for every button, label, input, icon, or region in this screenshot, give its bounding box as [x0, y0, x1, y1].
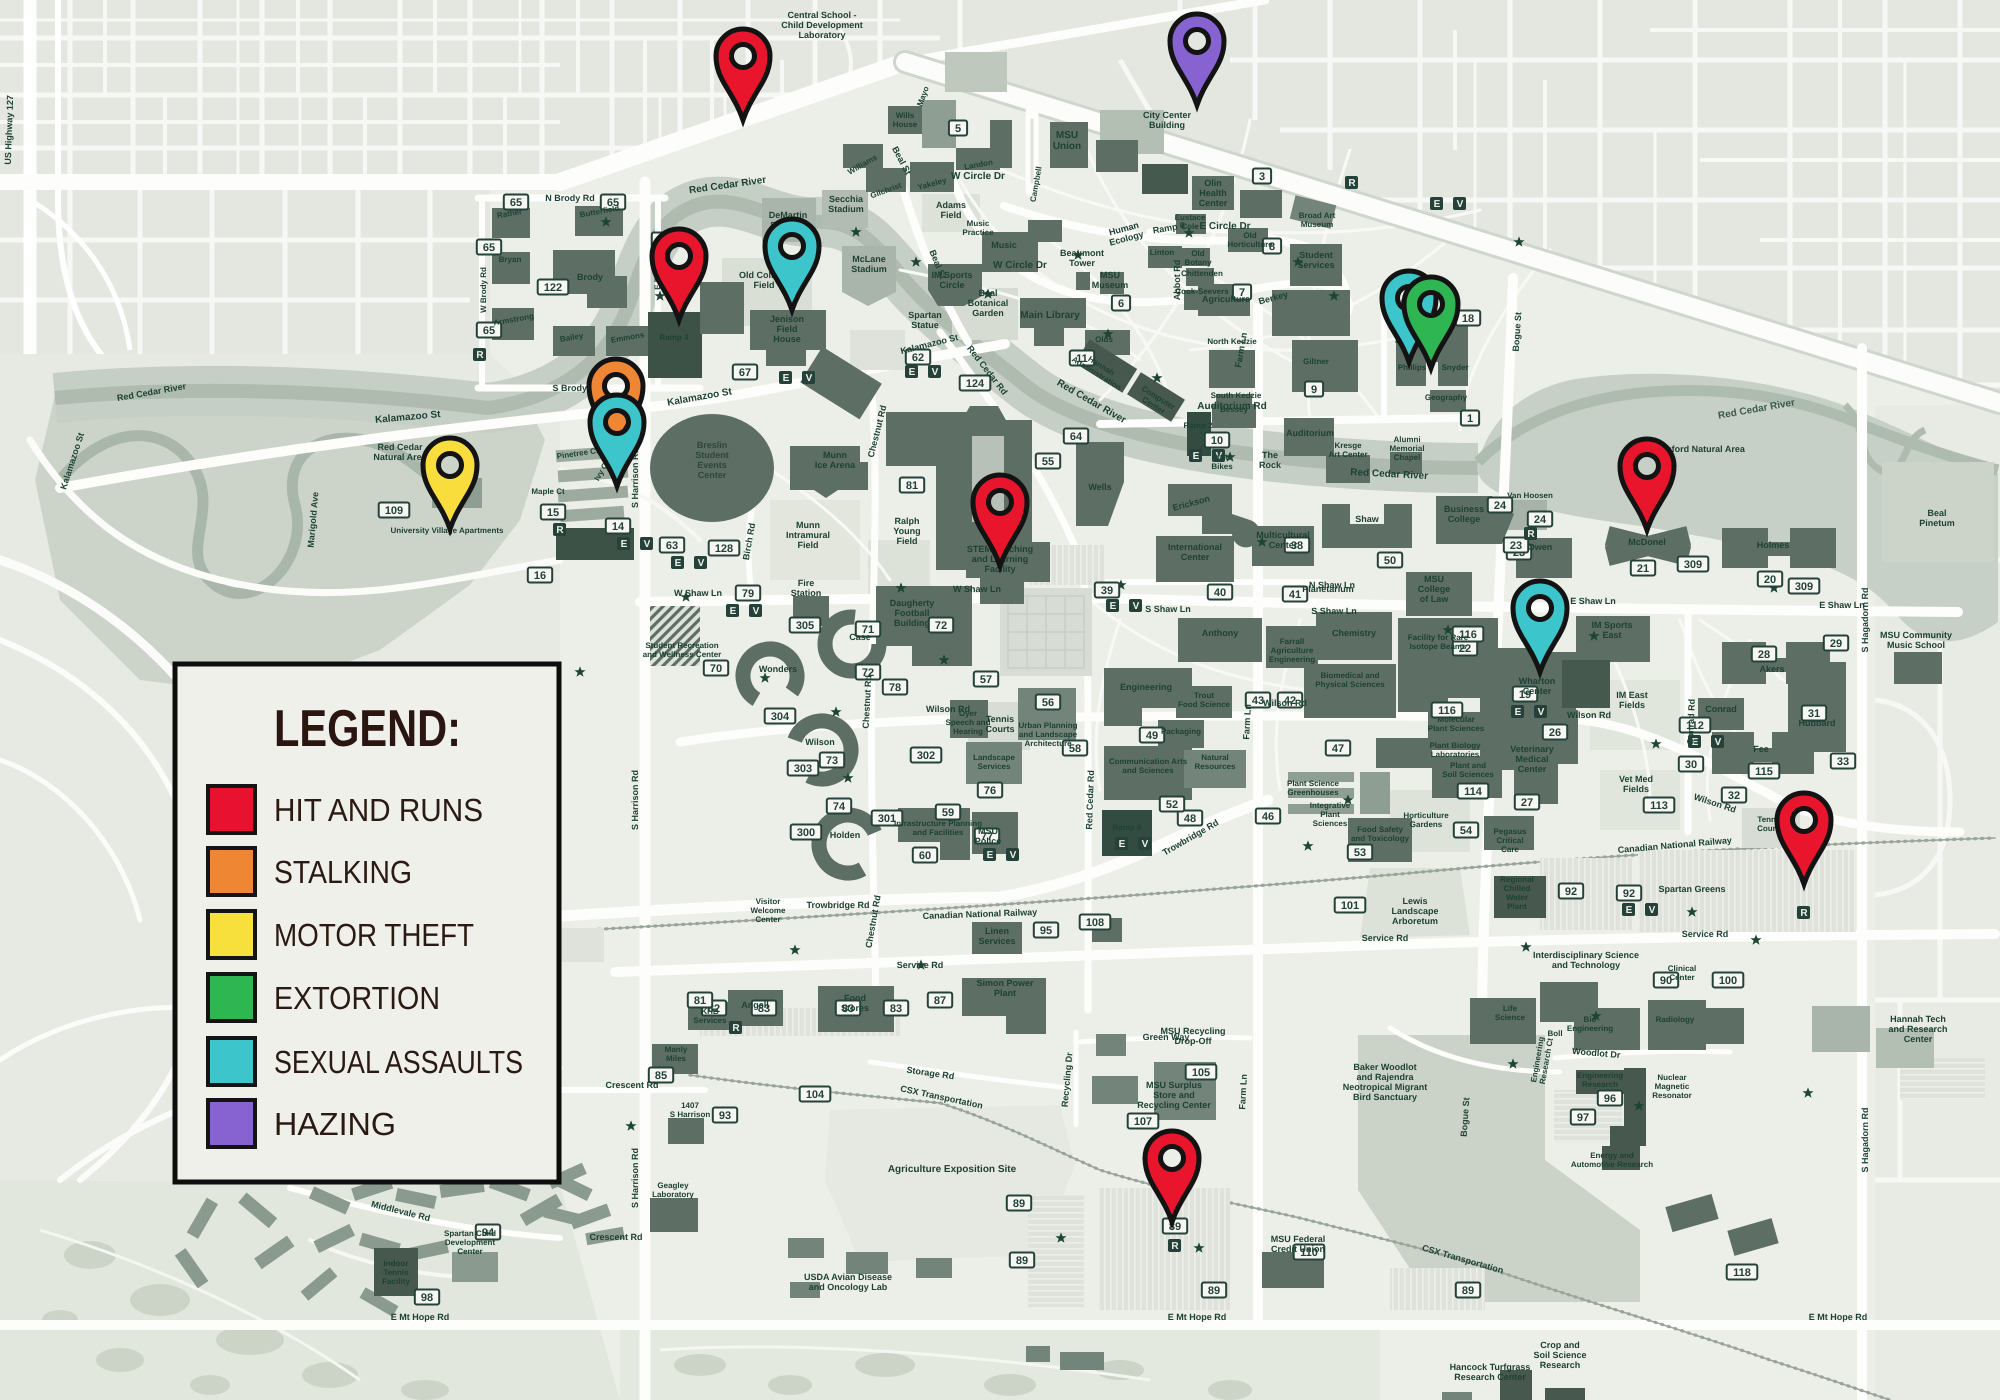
- svg-text:LEGEND:: LEGEND:: [274, 700, 461, 758]
- svg-text:E Shaw Ln: E Shaw Ln: [1819, 600, 1865, 610]
- svg-text:92: 92: [1623, 888, 1635, 900]
- svg-text:V: V: [932, 367, 939, 378]
- svg-text:E Shaw Ln: E Shaw Ln: [1570, 596, 1616, 606]
- svg-text:Ramp 2: Ramp 2: [1184, 421, 1213, 430]
- svg-text:89: 89: [1208, 1285, 1220, 1297]
- svg-text:Van Hoosen: Van Hoosen: [1507, 491, 1553, 500]
- svg-text:AdamsField: AdamsField: [936, 200, 966, 220]
- svg-text:28: 28: [1758, 649, 1770, 661]
- svg-text:Radiology: Radiology: [1656, 1015, 1695, 1024]
- svg-text:E: E: [987, 850, 994, 861]
- svg-text:McLaneStadium: McLaneStadium: [851, 254, 887, 274]
- svg-text:V: V: [753, 606, 760, 617]
- svg-text:30: 30: [1685, 759, 1697, 771]
- svg-text:32: 32: [1728, 790, 1740, 802]
- svg-text:McDonel: McDonel: [1628, 537, 1666, 547]
- svg-text:Crescent Rd: Crescent Rd: [605, 1080, 658, 1090]
- svg-text:Olds: Olds: [1095, 335, 1113, 344]
- svg-text:Holmes: Holmes: [1757, 540, 1790, 550]
- svg-text:97: 97: [1577, 1112, 1589, 1124]
- svg-text:Spartan Greens: Spartan Greens: [1658, 884, 1725, 894]
- svg-text:26: 26: [1549, 727, 1561, 739]
- svg-text:MSUUnion: MSUUnion: [1053, 130, 1081, 152]
- svg-text:Broad ArtMuseum: Broad ArtMuseum: [1299, 211, 1336, 229]
- svg-text:E: E: [783, 373, 790, 384]
- svg-text:56: 56: [1042, 697, 1054, 709]
- svg-text:9: 9: [1311, 384, 1317, 396]
- svg-text:R: R: [556, 525, 564, 536]
- svg-text:City CenterBuilding: City CenterBuilding: [1143, 110, 1192, 130]
- svg-text:87: 87: [934, 995, 946, 1007]
- svg-text:E Mt Hope Rd: E Mt Hope Rd: [391, 1312, 450, 1322]
- svg-text:MSU CommunityMusic School: MSU CommunityMusic School: [1880, 630, 1952, 650]
- svg-text:83: 83: [890, 1003, 902, 1015]
- svg-text:47: 47: [1332, 743, 1344, 755]
- svg-text:Fee: Fee: [1753, 744, 1769, 754]
- svg-text:Holden: Holden: [830, 830, 861, 840]
- svg-text:20: 20: [1764, 574, 1776, 586]
- svg-text:HIT AND RUNS: HIT AND RUNS: [274, 792, 483, 828]
- svg-text:Ramp 6: Ramp 6: [1113, 823, 1142, 832]
- svg-text:118: 118: [1733, 1267, 1751, 1279]
- svg-text:98: 98: [421, 1292, 433, 1304]
- svg-text:Farm Ln: Farm Ln: [1237, 1074, 1249, 1110]
- svg-text:64: 64: [1070, 431, 1083, 443]
- svg-text:E: E: [675, 558, 682, 569]
- svg-text:3: 3: [1259, 171, 1265, 183]
- svg-text:40: 40: [1214, 587, 1226, 599]
- svg-text:V: V: [1010, 850, 1017, 861]
- svg-text:S Harrison Rd: S Harrison Rd: [630, 1148, 640, 1208]
- svg-text:V: V: [806, 373, 813, 384]
- svg-text:SpartanStatue: SpartanStatue: [908, 310, 942, 330]
- svg-text:SecchiaStadium: SecchiaStadium: [828, 194, 864, 214]
- svg-text:48: 48: [1184, 813, 1196, 825]
- svg-text:GeagleyLaboratory: GeagleyLaboratory: [652, 1181, 694, 1199]
- svg-text:Biomedical andPhysical Science: Biomedical andPhysical Sciences: [1315, 671, 1385, 689]
- svg-text:Wilson Rd: Wilson Rd: [1263, 698, 1307, 708]
- svg-text:Red CedarNatural Area: Red CedarNatural Area: [373, 442, 427, 462]
- svg-text:81: 81: [906, 480, 918, 492]
- svg-text:W Brody Rd: W Brody Rd: [479, 267, 488, 313]
- svg-text:33: 33: [1837, 756, 1849, 768]
- svg-text:21: 21: [1637, 563, 1649, 575]
- svg-text:304: 304: [771, 711, 790, 723]
- svg-text:54: 54: [1460, 825, 1473, 837]
- svg-text:46: 46: [1262, 811, 1274, 823]
- svg-text:89: 89: [1013, 1198, 1025, 1210]
- svg-text:Red Cedar Rd: Red Cedar Rd: [1084, 770, 1096, 830]
- svg-text:309: 309: [1684, 559, 1702, 571]
- svg-text:S Hagadorn Rd: S Hagadorn Rd: [1860, 1107, 1870, 1172]
- svg-text:303: 303: [794, 763, 812, 775]
- svg-text:V: V: [1142, 839, 1149, 850]
- svg-text:Phillips: Phillips: [1398, 363, 1427, 372]
- svg-text:39: 39: [1101, 585, 1113, 597]
- svg-text:89: 89: [1016, 1255, 1028, 1267]
- svg-text:BusinessCollege: BusinessCollege: [1444, 504, 1484, 524]
- svg-text:55: 55: [1042, 456, 1054, 468]
- svg-text:E: E: [1515, 707, 1522, 718]
- svg-text:Wilson Rd: Wilson Rd: [1567, 710, 1611, 720]
- svg-text:Giltner: Giltner: [1303, 357, 1329, 366]
- svg-text:62: 62: [912, 352, 924, 364]
- svg-text:ClinicalCenter: ClinicalCenter: [1668, 964, 1696, 982]
- svg-text:107: 107: [1134, 1116, 1152, 1128]
- svg-text:Farm Ln: Farm Ln: [1241, 704, 1253, 740]
- svg-text:6: 6: [1118, 298, 1124, 310]
- svg-text:E: E: [1119, 839, 1126, 850]
- svg-text:V: V: [1538, 707, 1545, 718]
- svg-text:52: 52: [1166, 799, 1178, 811]
- svg-text:72: 72: [935, 620, 947, 632]
- svg-text:89: 89: [1462, 1285, 1474, 1297]
- svg-text:E: E: [909, 367, 916, 378]
- svg-text:60: 60: [919, 850, 931, 862]
- svg-text:49: 49: [1146, 730, 1158, 742]
- svg-text:Urban Planningand LandscapeArc: Urban Planningand LandscapeArchitecture: [1018, 721, 1077, 748]
- svg-text:105: 105: [1192, 1067, 1210, 1079]
- svg-text:StudentServices: StudentServices: [1297, 250, 1334, 270]
- svg-text:57: 57: [980, 674, 992, 686]
- svg-text:W Circle Dr: W Circle Dr: [951, 171, 1005, 182]
- svg-text:Planetarium: Planetarium: [1302, 584, 1354, 594]
- svg-text:E: E: [1193, 451, 1200, 462]
- svg-text:V: V: [1715, 737, 1722, 748]
- svg-text:41: 41: [1289, 589, 1301, 601]
- svg-text:R: R: [1527, 529, 1535, 540]
- svg-text:Chittenden: Chittenden: [1181, 269, 1223, 278]
- svg-text:93: 93: [719, 1110, 731, 1122]
- svg-text:Vet MedFields: Vet MedFields: [1619, 774, 1653, 794]
- svg-text:E Mt Hope Rd: E Mt Hope Rd: [1809, 1312, 1868, 1322]
- svg-text:Conrad: Conrad: [1705, 704, 1737, 714]
- svg-text:Owen: Owen: [1528, 542, 1553, 552]
- svg-text:W Shaw Ln: W Shaw Ln: [953, 584, 1001, 594]
- svg-text:E: E: [1626, 905, 1633, 916]
- svg-text:Music: Music: [991, 240, 1017, 250]
- svg-text:IndoorTennisFacility: IndoorTennisFacility: [382, 1259, 410, 1286]
- svg-text:Plant ScienceGreenhouses: Plant ScienceGreenhouses: [1287, 779, 1340, 797]
- svg-text:South Kedzie: South Kedzie: [1211, 391, 1262, 400]
- svg-text:MSUPolice: MSUPolice: [975, 826, 1002, 846]
- svg-text:Trowbridge Rd: Trowbridge Rd: [807, 900, 870, 910]
- svg-text:MOTOR THEFT: MOTOR THEFT: [274, 917, 474, 953]
- svg-text:Boll: Boll: [1547, 1029, 1562, 1038]
- svg-text:309: 309: [1795, 581, 1813, 593]
- svg-text:Baker Woodlotand RajendraNeotr: Baker Woodlotand RajendraNeotropical Mig…: [1343, 1062, 1428, 1102]
- svg-text:Food Safetyand Toxicology: Food Safetyand Toxicology: [1351, 825, 1410, 843]
- svg-text:100: 100: [1719, 975, 1737, 987]
- svg-text:73: 73: [826, 755, 838, 767]
- svg-text:Akers: Akers: [1759, 664, 1784, 674]
- svg-text:MSU FederalCredit Union: MSU FederalCredit Union: [1271, 1234, 1326, 1254]
- svg-text:Plant BiologyLaboratories: Plant BiologyLaboratories: [1429, 741, 1481, 759]
- svg-text:74: 74: [833, 801, 846, 813]
- svg-text:E Mt Hope Rd: E Mt Hope Rd: [1168, 1312, 1227, 1322]
- svg-text:70: 70: [710, 663, 722, 675]
- svg-text:10: 10: [1211, 435, 1223, 447]
- svg-text:96: 96: [1604, 1093, 1616, 1105]
- svg-text:DaughertyFootballBuilding: DaughertyFootballBuilding: [890, 598, 935, 628]
- svg-text:Agriculture Exposition Site: Agriculture Exposition Site: [888, 1164, 1017, 1175]
- svg-text:Agriculture: Agriculture: [1202, 294, 1250, 304]
- svg-text:NuclearMagneticResonator: NuclearMagneticResonator: [1652, 1073, 1692, 1100]
- svg-text:122: 122: [544, 282, 562, 294]
- svg-text:E: E: [621, 539, 628, 550]
- svg-text:Case: Case: [849, 632, 871, 642]
- svg-text:1: 1: [1467, 413, 1473, 425]
- svg-text:67: 67: [739, 367, 751, 379]
- svg-text:14: 14: [612, 521, 625, 533]
- svg-text:V: V: [698, 558, 705, 569]
- svg-text:Snyder: Snyder: [1441, 363, 1468, 372]
- svg-text:Hancock TurfgrassResearch Cent: Hancock TurfgrassResearch Center: [1450, 1362, 1531, 1382]
- svg-text:WillsHouse: WillsHouse: [893, 111, 918, 129]
- svg-text:76: 76: [984, 785, 996, 797]
- svg-text:302: 302: [917, 750, 935, 762]
- svg-text:E: E: [1434, 199, 1441, 210]
- svg-text:Angell: Angell: [741, 1000, 769, 1010]
- svg-text:Brody: Brody: [577, 272, 603, 282]
- svg-text:78: 78: [889, 682, 901, 694]
- svg-text:300: 300: [797, 827, 815, 839]
- svg-text:Engineering: Engineering: [1120, 682, 1172, 692]
- svg-text:R: R: [1800, 908, 1808, 919]
- svg-text:Student Recreationand Wellness: Student Recreationand Wellness Center: [643, 641, 722, 659]
- svg-text:Shaw: Shaw: [1355, 514, 1380, 524]
- svg-text:109: 109: [385, 505, 403, 517]
- svg-text:Crescent Rd: Crescent Rd: [589, 1232, 642, 1242]
- svg-text:Maple Ct: Maple Ct: [531, 487, 565, 496]
- svg-text:53: 53: [1354, 847, 1366, 859]
- svg-text:27: 27: [1521, 797, 1533, 809]
- svg-text:N Brody Rd: N Brody Rd: [545, 193, 595, 203]
- svg-text:Main Library: Main Library: [1020, 310, 1080, 321]
- svg-text:Auditorium: Auditorium: [1286, 428, 1334, 438]
- svg-text:92: 92: [1565, 886, 1577, 898]
- svg-text:Wells: Wells: [1088, 482, 1111, 492]
- svg-text:LandscapeServices: LandscapeServices: [973, 753, 1015, 771]
- svg-text:Conrad Rd: Conrad Rd: [1685, 699, 1697, 745]
- svg-text:IM EastFields: IM EastFields: [1616, 690, 1648, 710]
- svg-text:124: 124: [966, 378, 985, 390]
- svg-text:95: 95: [1040, 925, 1052, 937]
- svg-text:Wilson: Wilson: [805, 737, 834, 747]
- svg-text:North Kedzie: North Kedzie: [1207, 337, 1257, 346]
- svg-text:Geography: Geography: [1425, 393, 1468, 402]
- svg-text:S Harrison Rd: S Harrison Rd: [630, 770, 640, 830]
- svg-text:Packaging: Packaging: [1161, 727, 1201, 736]
- svg-text:Wonders: Wonders: [759, 664, 797, 674]
- svg-text:128: 128: [715, 543, 733, 555]
- svg-text:101: 101: [1341, 900, 1359, 912]
- svg-text:108: 108: [1086, 917, 1104, 929]
- svg-text:WhartonCenter: WhartonCenter: [1519, 676, 1556, 696]
- svg-text:18: 18: [1462, 313, 1474, 325]
- svg-text:114: 114: [1464, 786, 1483, 798]
- svg-text:16: 16: [534, 570, 546, 582]
- svg-text:Ramp 4: Ramp 4: [660, 333, 689, 342]
- svg-text:Service Rd: Service Rd: [897, 960, 944, 970]
- svg-text:Crop andSoil ScienceResearch: Crop andSoil ScienceResearch: [1533, 1340, 1586, 1370]
- svg-text:305: 305: [796, 620, 814, 632]
- svg-text:W Circle Dr: W Circle Dr: [993, 260, 1047, 271]
- svg-text:Chemistry: Chemistry: [1332, 628, 1376, 638]
- svg-text:23: 23: [1510, 540, 1522, 552]
- svg-text:V: V: [1457, 199, 1464, 210]
- svg-text:S Shaw Ln: S Shaw Ln: [1145, 604, 1191, 614]
- svg-text:R: R: [732, 1023, 740, 1034]
- svg-text:65: 65: [483, 242, 495, 254]
- svg-text:Anthony: Anthony: [1202, 628, 1239, 638]
- svg-text:EngineeringResearch: EngineeringResearch: [1577, 1071, 1623, 1089]
- svg-text:E: E: [730, 606, 737, 617]
- svg-text:115: 115: [1755, 766, 1773, 778]
- svg-text:BreslinStudentEventsCenter: BreslinStudentEventsCenter: [695, 440, 729, 480]
- svg-text:Linton: Linton: [1150, 248, 1175, 257]
- svg-text:R: R: [1171, 1241, 1179, 1252]
- svg-text:63: 63: [666, 540, 678, 552]
- svg-text:24: 24: [1534, 514, 1547, 526]
- svg-text:24: 24: [1494, 500, 1507, 512]
- svg-text:AlumniMemorialChapel: AlumniMemorialChapel: [1389, 435, 1424, 462]
- svg-text:R: R: [1348, 178, 1356, 189]
- svg-text:Bessey: Bessey: [1220, 405, 1249, 414]
- svg-text:Service Rd: Service Rd: [1362, 933, 1409, 943]
- svg-text:113: 113: [1650, 800, 1668, 812]
- svg-text:RalphYoungField: RalphYoungField: [893, 516, 920, 546]
- svg-text:STALKING: STALKING: [274, 854, 412, 890]
- svg-text:V: V: [1133, 601, 1140, 612]
- svg-text:S Shaw Ln: S Shaw Ln: [1311, 606, 1357, 616]
- svg-text:ManlyMiles: ManlyMiles: [665, 1045, 688, 1063]
- svg-text:Bryan: Bryan: [499, 255, 522, 264]
- svg-text:Service Rd: Service Rd: [1682, 929, 1729, 939]
- svg-text:E: E: [1110, 601, 1117, 612]
- svg-text:S Hagadorn Rd: S Hagadorn Rd: [1860, 587, 1870, 652]
- svg-text:Hubbard: Hubbard: [1799, 718, 1836, 728]
- svg-text:MSUBikes: MSUBikes: [1211, 453, 1233, 471]
- svg-text:SEXUAL ASSAULTS: SEXUAL ASSAULTS: [274, 1044, 523, 1080]
- svg-text:V: V: [644, 539, 651, 550]
- svg-text:81: 81: [694, 995, 706, 1007]
- svg-text:V: V: [1649, 905, 1656, 916]
- svg-text:EXTORTION: EXTORTION: [274, 980, 440, 1016]
- svg-text:R: R: [476, 350, 484, 361]
- svg-text:59: 59: [942, 807, 954, 819]
- svg-text:Facility for RareIsotope Beams: Facility for RareIsotope Beams: [1408, 633, 1469, 651]
- svg-text:79: 79: [742, 588, 754, 600]
- svg-text:50: 50: [1384, 555, 1396, 567]
- svg-text:29: 29: [1830, 638, 1842, 650]
- svg-text:104: 104: [806, 1089, 825, 1101]
- svg-text:FoodStores: FoodStores: [841, 993, 869, 1013]
- svg-text:15: 15: [547, 507, 559, 519]
- svg-text:5: 5: [955, 123, 961, 135]
- svg-text:W Shaw Ln: W Shaw Ln: [674, 588, 722, 598]
- svg-text:HAZING: HAZING: [274, 1106, 396, 1142]
- svg-text:USDA Avian Diseaseand Oncology: USDA Avian Diseaseand Oncology Lab: [804, 1272, 892, 1292]
